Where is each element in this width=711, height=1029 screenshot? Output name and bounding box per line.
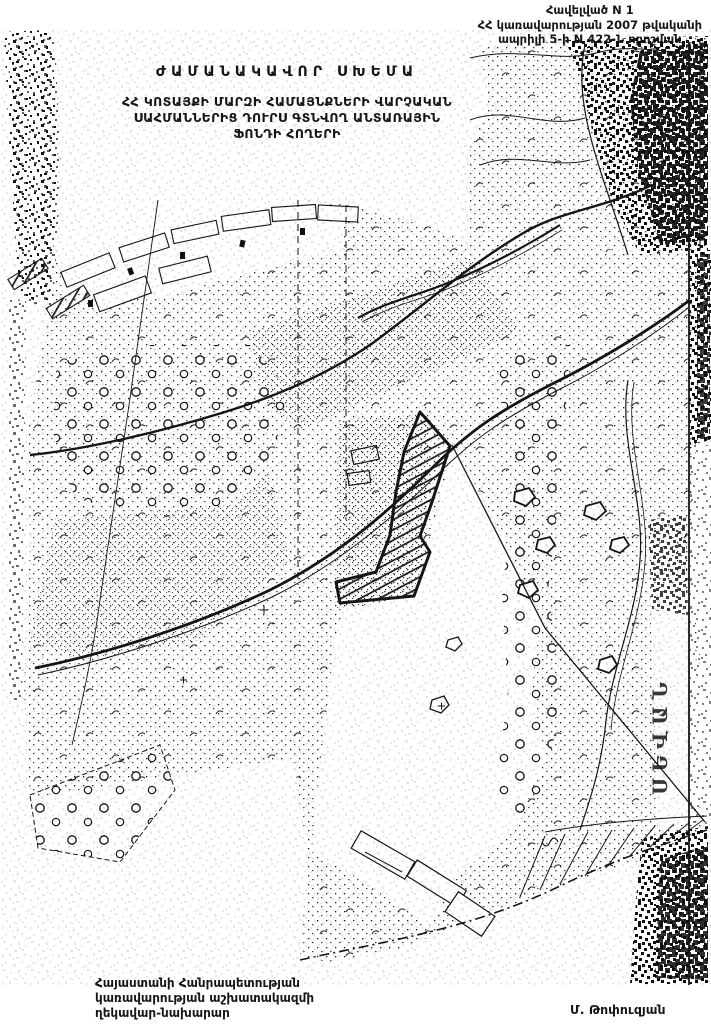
scan-noise-overlay	[0, 30, 711, 985]
scanned-annex-page: Հավելված N 1 ՀՀ կառավարության 2007 թվակա…	[0, 0, 711, 1029]
document-header: Հավելված N 1 ՀՀ կառավարության 2007 թվակա…	[478, 3, 702, 47]
signatory-line-2: կառավարության աշխատակազմի	[95, 991, 314, 1006]
page-title: ԺԱՄԱՆԱԿԱՎՈՐ ՍԽԵՄԱ ՀՀ ԿՈՏԱՅՔԻ ՄԱՐԶԻ ՀԱՄԱՅ…	[62, 64, 512, 142]
title-sub-3: ՖՈՆԴԻ ՀՈՂԵՐԻ	[62, 126, 512, 142]
title-sub-2: ՍԱՀՄԱՆՆԵՐԻՑ ԴՈՒՐՍ ԳՏՆՎՈՂ ԱՆՏԱՌԱՅԻՆ	[62, 110, 512, 126]
signatory-block: Հայաստանի Հանրապետության կառավարության ա…	[95, 976, 314, 1021]
header-line-2: ՀՀ կառավարության 2007 թվականի	[478, 18, 702, 33]
signature-name: Մ. Թոփուզյան	[570, 1002, 666, 1017]
header-line-3: ապրիլի 5-ի N 422-Ն որոշման	[478, 32, 702, 47]
title-main: ԺԱՄԱՆԱԿԱՎՈՐ ՍԽԵՄԱ	[62, 64, 512, 80]
header-line-1: Հավելված N 1	[478, 3, 702, 18]
map-vertical-label: ՍԵՎԱՆ	[648, 625, 672, 795]
map-canvas	[0, 0, 711, 1029]
signatory-line-3: ղեկավար-նախարար	[95, 1006, 314, 1021]
signatory-line-1: Հայաստանի Հանրապետության	[95, 976, 314, 991]
title-sub-1: ՀՀ ԿՈՏԱՅՔԻ ՄԱՐԶԻ ՀԱՄԱՅՆՔՆԵՐԻ ՎԱՐՉԱԿԱՆ	[62, 94, 512, 110]
